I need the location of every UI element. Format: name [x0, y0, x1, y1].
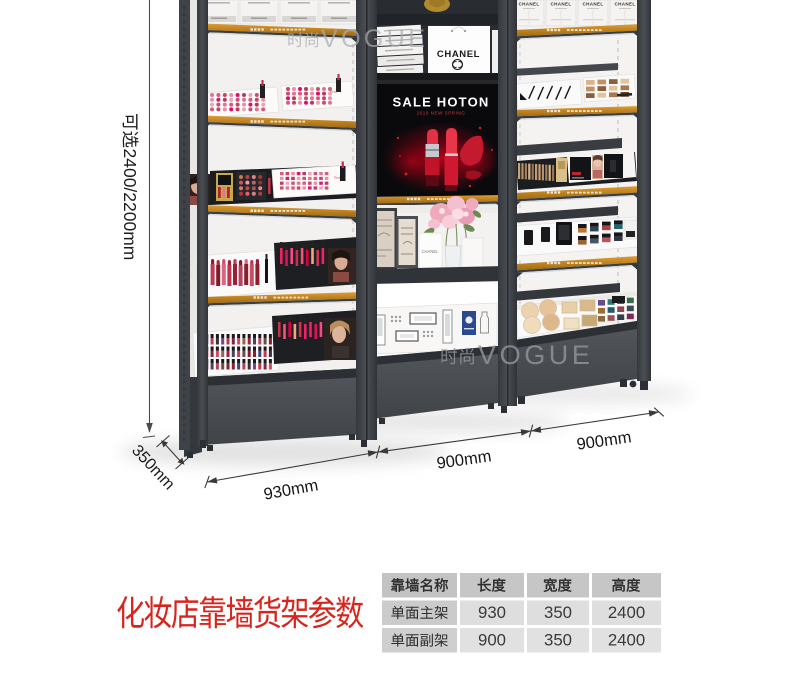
svg-text:CHANEL: CHANEL: [551, 2, 572, 7]
svg-text:2400: 2400: [608, 631, 645, 650]
svg-text:CHANEL: CHANEL: [519, 2, 540, 7]
svg-text:Pink: Pink: [334, 176, 341, 180]
svg-text:SALE HOTON: SALE HOTON: [393, 95, 490, 110]
svg-text:2400: 2400: [608, 603, 645, 622]
svg-text:350: 350: [544, 631, 572, 650]
svg-text:2019 NEW SPRING: 2019 NEW SPRING: [417, 111, 466, 116]
svg-text:CHANEL: CHANEL: [422, 249, 440, 254]
svg-text:VOGUE: VOGUE: [478, 340, 594, 370]
svg-text:CHANEL: CHANEL: [615, 2, 636, 7]
svg-text:350: 350: [544, 603, 572, 622]
svg-text:VOGUE: VOGUE: [321, 25, 428, 53]
svg-text:930: 930: [478, 603, 506, 622]
svg-text:CHANEL: CHANEL: [583, 2, 604, 7]
svg-text:CHANEL: CHANEL: [437, 49, 480, 60]
svg-text:900: 900: [478, 631, 506, 650]
svg-text:2400/2200mm: 2400/2200mm: [120, 149, 140, 261]
svg-text:Pink: Pink: [330, 90, 337, 94]
